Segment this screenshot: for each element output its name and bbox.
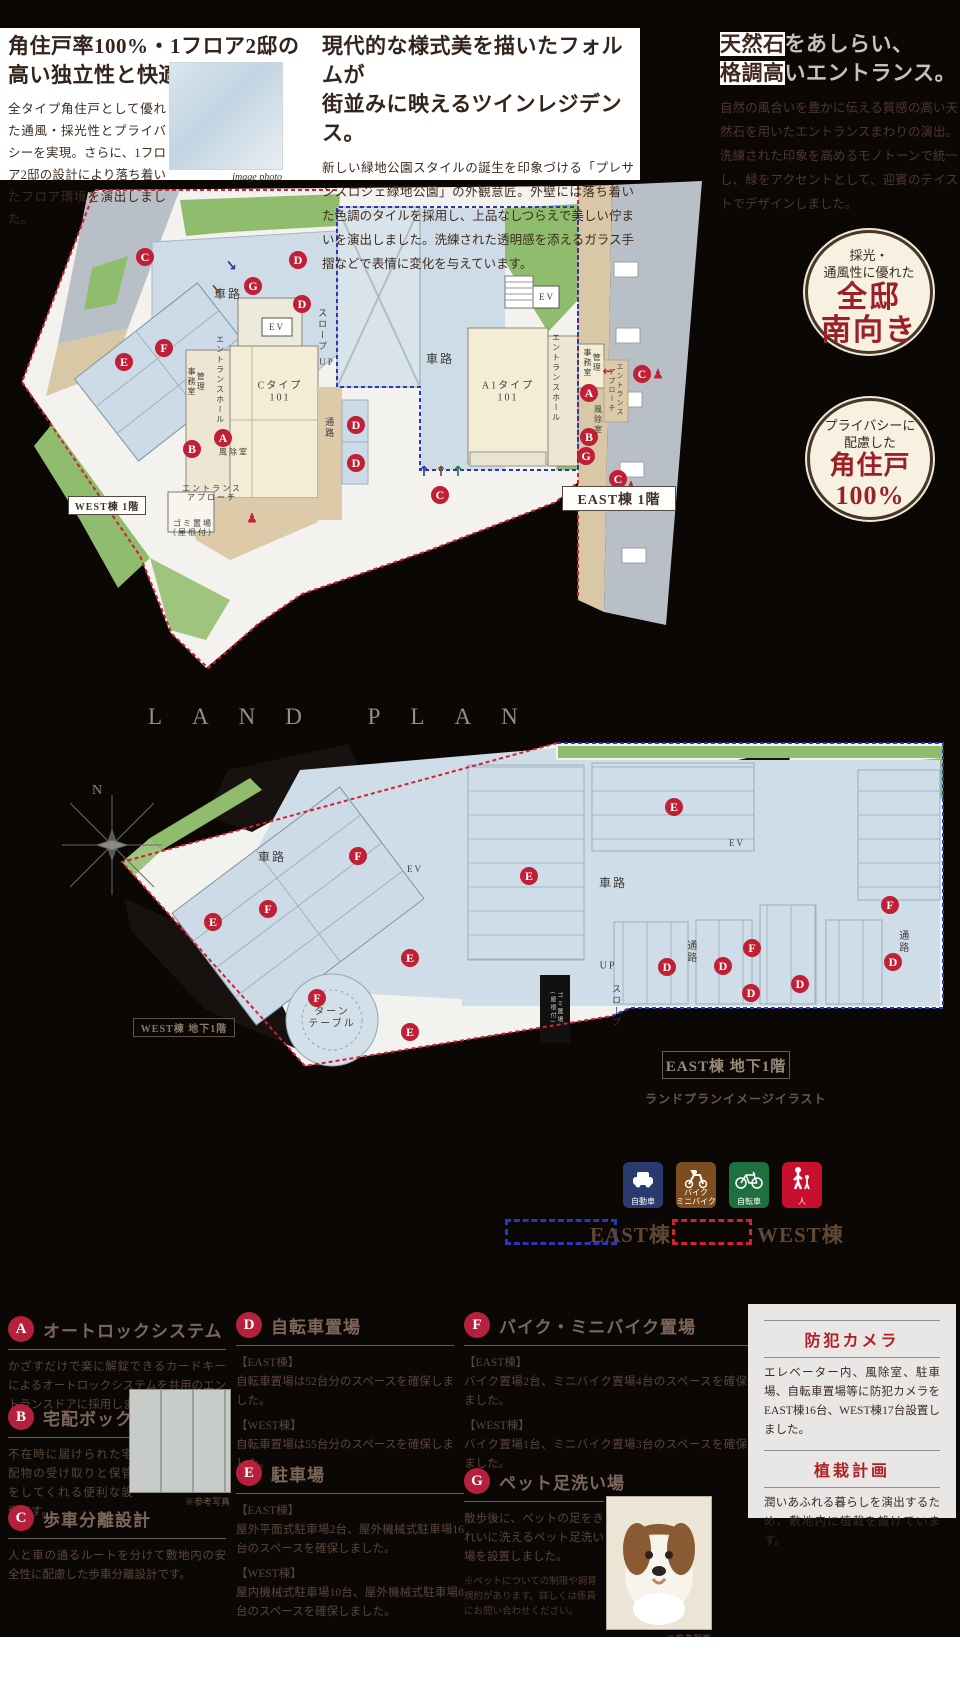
plan-glyph: ♟ [246,512,258,527]
header-col3-body: 自然の風合いを豊かに伝える質感の高い天然石を用いたエントランスまわりの演出。洗練… [720,96,958,216]
delivery-box-photo [130,1390,230,1492]
feature-F: F バイク・ミニバイク置場【EAST棟】 バイク置場2台、ミニバイク置場4台のス… [464,1312,759,1480]
badge1-small-line2: 通風性に優れた [808,264,930,281]
plan-label: 車路 [599,877,627,891]
plan-marker: D [347,454,365,472]
plan-marker: E [204,913,222,931]
plan-marker: D [742,984,760,1002]
car-icon [627,1164,659,1192]
feature-title: 自転車置場 [271,1313,361,1338]
feature-D: D 自転車置場【EAST棟】 自転車置場は52台分のスペースを確保しました。【W… [236,1312,454,1480]
badge-corner-units: プライバシーに 配慮した 角住戸 100% [807,398,933,520]
header-col2-title: 現代的な様式美を描いたフォルムが街並みに映えるツインレジデンス。 [322,32,634,148]
plan-marker: E [401,949,419,967]
feature-body: 【EAST棟】 自転車置場は52台分のスペースを確保しました。 [236,1354,454,1411]
land-plan-page: 車路車路スロープUPEVエントランスホール管理 事務室Cタイプ 101風除室エン… [0,0,960,1687]
plan-marker: G [577,447,595,465]
footer-strip [0,1637,960,1687]
header-col3: 天然石をあしらい、格調高いエントランス。 自然の風合いを豊かに伝える質感の高い天… [720,30,958,216]
feature-body: 人と車の通るルートを分けて敷地内の安全性に配慮した歩車分離設計です。 [8,1547,226,1585]
plan-label: スロープ [317,308,327,352]
legend-moped-icon: バイク ミニバイク [676,1162,716,1208]
plan-name-box: EAST棟 地下1階 [662,1051,790,1079]
plan-label: Cタイプ 101 [258,381,303,404]
header-col2-body: 新しい緑地公園スタイルの誕生を印象づける「プレサンスロジェ緑地公園」の外観意匠。… [322,156,634,276]
plan-glyph: ↑ [452,464,464,480]
info-box-heading: 防犯カメラ [764,1327,940,1351]
info-box-body: 潤いあふれる暮らしを演出するため、敷地内に植栽を設けています。 [764,1494,940,1551]
plan-label: 通路 [324,417,334,439]
plan-name-box: EAST棟 1階 [562,486,676,511]
badge2-small-line1: プライバシーに [810,417,930,434]
badge1-big-line2: 南向き [808,314,930,347]
feature-title: 駐車場 [271,1461,325,1486]
header-col2: 現代的な様式美を描いたフォルムが街並みに映えるツインレジデンス。 新しい緑地公園… [322,32,634,276]
feature-letter-badge: E [236,1460,262,1486]
plan-label: EV [269,322,285,332]
plan-marker: D [714,957,732,975]
plan-label: 通路 [896,930,908,954]
feature-letter-badge: F [464,1312,490,1338]
plan-marker: C [136,248,154,266]
feature-title: 歩車分離設計 [43,1506,151,1531]
balcony-photo-caption: image photo [170,172,282,183]
plan-label: 風除室 [219,447,249,456]
security-planting-box: 防犯カメラエレベーター内、風除室、駐車場、自転車置場等に防犯カメラをEAST棟1… [748,1304,956,1518]
feature-G: G ペット足洗い場散歩後に、ペットの足をきれいに洗えるペット足洗い場を設置しまし… [464,1468,604,1620]
plan-label: EV [407,864,423,874]
balcony-photo [170,63,282,169]
feature-title: バイク・ミニバイク置場 [499,1313,696,1338]
plan-marker: E [665,798,683,816]
plan-label: EV [729,838,745,848]
plan-glyph: ↑ [435,464,447,480]
feature-body: 【WEST棟】 屋内機械式駐車場10台、屋外機械式駐車場8台のスペースを確保しま… [236,1565,464,1622]
legend-label: 自動車 [631,1197,655,1206]
badge2-big-line1: 角住戸 [810,451,930,481]
feature-E: E 駐車場【EAST棟】 屋外平面式駐車場2台、屋外機械式駐車場16台のスペース… [236,1460,464,1628]
plan-marker: F [881,896,899,914]
plan-label: スロープ [611,984,621,1028]
plan-label: ターン テーブル [308,1007,355,1030]
plan-glyph: ← [603,365,614,380]
feature-letter-badge: G [464,1468,490,1494]
plan-label: エントランスホール [215,335,224,425]
header-col3-title: 天然石をあしらい、格調高いエントランス。 [720,30,958,88]
plan-name-box: WEST棟 1階 [68,496,146,515]
plan-marker: D [347,416,365,434]
info-box-heading: 植栽計画 [764,1457,940,1481]
west-area-label: WEST棟 [757,1219,844,1249]
header-col1-body: 全タイプ角住戸として優れた通風・採光性とプライバシーを実現。さらに、1フロア2邸… [8,98,166,230]
land-plan-heading: LAND PLAN [148,704,548,730]
plan-marker: F [349,847,367,865]
plan-label: UP [319,357,335,367]
badge2-big-line2: 100% [810,481,930,511]
plan-label: エントランスホール [551,333,560,423]
person-icon [786,1164,818,1192]
plan-marker: A [214,429,232,447]
legend-car-icon: 自動車 [623,1162,663,1208]
plan-marker: D [289,251,307,269]
vehicle-legend: 自動車バイク ミニバイク自転車人 [623,1162,822,1208]
plan-marker: D [293,295,311,313]
moped-icon [680,1164,712,1192]
plan-label: 車路 [426,353,454,367]
delivery-box-photo-caption: ※参考写真 [130,1495,230,1508]
plan-glyph: ♟ [652,368,664,383]
feature-body: 【EAST棟】 バイク置場2台、ミニバイク置場4台のスペースを確保しました。 [464,1354,759,1411]
plan-marker: D [658,958,676,976]
plan-label: 通路 [684,940,696,964]
puppy-photo [607,1497,711,1629]
legend-bicycle-icon: 自転車 [729,1162,769,1208]
plan-label: 管理 事務室 [187,367,205,397]
plan-marker: A [580,384,598,402]
east-area-label: EAST棟 [590,1219,671,1249]
plan-marker: B [580,428,598,446]
west-area-swatch [672,1219,752,1245]
plan-name-box: WEST棟 地下1階 [133,1018,235,1037]
plan-marker: B [183,440,201,458]
plan-marker: E [401,1023,419,1041]
plan-marker: F [308,989,326,1007]
plan-label: 管理 事務室 [583,348,601,378]
plan-label: ゴミ置場 (屋根付) [548,992,562,1024]
feature-letter-badge: C [8,1505,34,1531]
feature-body: 【WEST棟】 バイク置場1台、ミニバイク置場3台のスペースを確保しました。 [464,1417,759,1474]
plan-marker: E [520,867,538,885]
info-box-body: エレベーター内、風除室、駐車場、自転車置場等に防犯カメラをEAST棟16台、WE… [764,1364,940,1440]
plan-marker: D [791,975,809,993]
plan-label: A1タイプ 101 [482,381,534,404]
feature-letter-badge: B [8,1404,34,1430]
badge1-small-line1: 採光・ [808,247,930,264]
plan-marker: C [431,486,449,504]
feature-title: ペット足洗い場 [499,1469,625,1494]
legend-label: 自転車 [737,1197,761,1206]
plan-marker: F [259,900,277,918]
plan-label: UP [600,960,617,972]
plan-marker: G [244,277,262,295]
legend-label: 人 [798,1197,806,1206]
plan-label: ゴミ置場 （屋根付） [168,519,218,537]
plan-label: EV [539,292,555,302]
plan-label: 車路 [258,851,286,865]
plan-glyph: ↓ [222,256,241,276]
feature-letter-badge: D [236,1312,262,1338]
feature-title: オートロックシステム [43,1317,223,1342]
bicycle-icon [733,1164,765,1192]
feature-note: ※ペットについての制限や飼育規約があります。詳しくは係員にお問い合わせください。 [464,1575,604,1620]
plan-marker: D [884,953,902,971]
feature-body: 散歩後に、ペットの足をきれいに洗えるペット足洗い場を設置しました。 [464,1510,604,1567]
plan-marker: F [155,339,173,357]
plan-glyph: ↑ [418,464,430,480]
badge2-small-line2: 配慮した [810,434,930,451]
plan2-caption: ランドプランイメージイラスト [645,1090,827,1107]
feature-body: 【EAST棟】 屋外平面式駐車場2台、屋外機械式駐車場16台のスペースを確保しま… [236,1502,464,1559]
badge1-big-line1: 全邸 [808,281,930,314]
compass-n-label: N [92,783,102,799]
plan-marker: F [743,939,761,957]
badge-south-facing: 採光・ 通風性に優れた 全邸 南向き [805,230,933,354]
feature-C: C 歩車分離設計人と車の通るルートを分けて敷地内の安全性に配慮した歩車分離設計で… [8,1505,226,1591]
legend-person-icon: 人 [782,1162,822,1208]
plan-marker: E [115,353,133,371]
plan-label: エントランス アプローチ [182,484,242,502]
feature-letter-badge: A [8,1316,34,1342]
plan-marker: C [633,365,651,383]
